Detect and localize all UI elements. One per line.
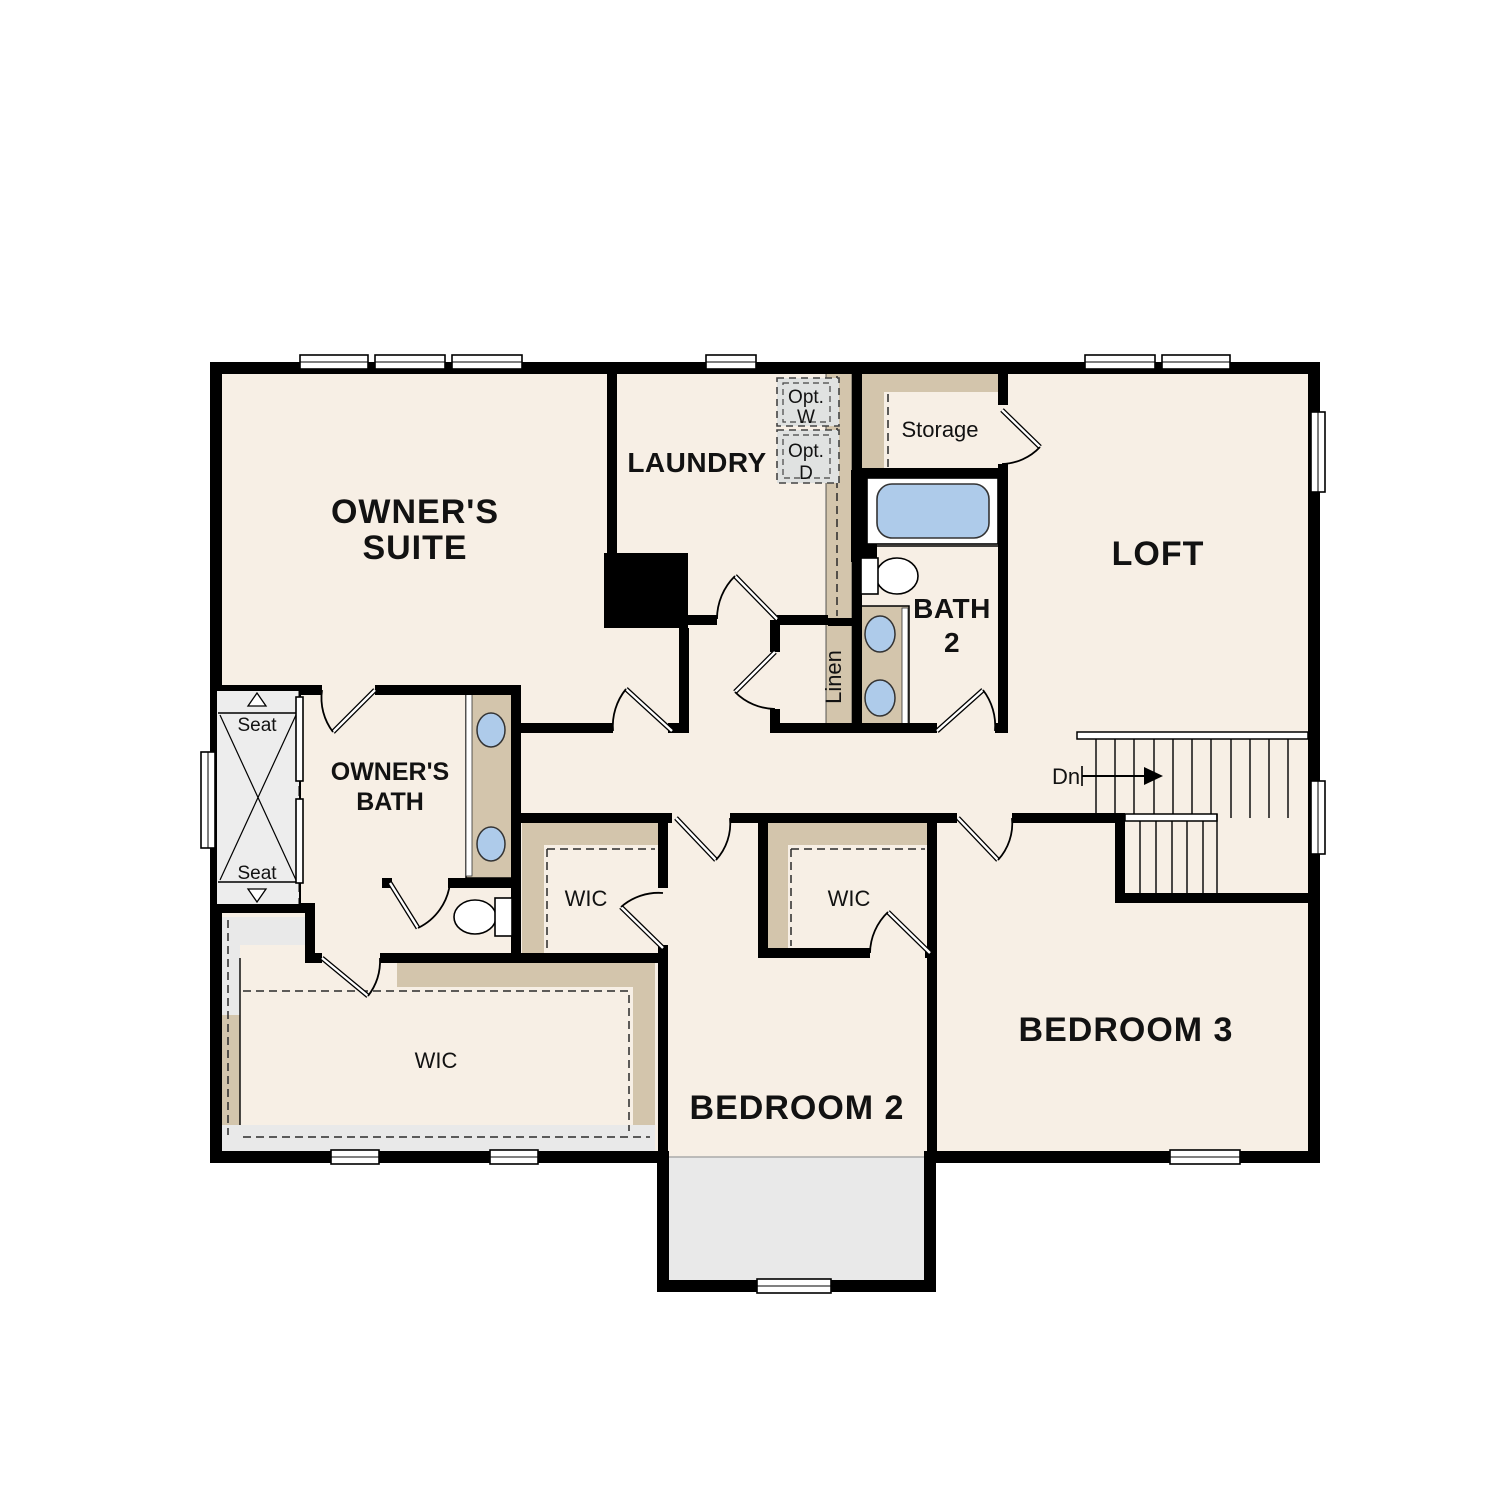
window — [375, 355, 445, 369]
bedroom2-bay-floor — [669, 1157, 924, 1280]
room-label-loft: LOFT — [1112, 535, 1205, 573]
bathtub-icon — [867, 478, 998, 544]
window — [1311, 781, 1325, 854]
optional-washer-label: W — [797, 407, 815, 428]
window — [201, 752, 215, 848]
chase — [604, 553, 688, 628]
shower-seat-label: Seat — [237, 715, 277, 736]
window — [490, 1150, 538, 1164]
shower-seat-label: Seat — [237, 863, 277, 884]
wic-shelf — [397, 963, 655, 987]
room-label-owners-bath: OWNER'S — [331, 758, 449, 786]
room-label-bedroom2: BEDROOM 2 — [690, 1089, 905, 1127]
optional-dryer-label: Opt. — [788, 441, 824, 462]
window — [1311, 412, 1325, 492]
optional-washer-label: Opt. — [788, 387, 824, 408]
room-label-wic-owners: WIC — [415, 1048, 458, 1073]
optional-dryer-label: D — [799, 463, 813, 484]
room-label-bath2: BATH — [913, 593, 991, 624]
room-label-wic-bedroom2-right: WIC — [828, 886, 871, 911]
sink-icon — [865, 680, 895, 716]
window — [452, 355, 522, 369]
toilet-icon — [454, 898, 512, 936]
floor-plan-page: OWNER'S SUITE LAUNDRY LOFT Storage BATH … — [0, 0, 1500, 1500]
room-label-bath2: 2 — [944, 627, 960, 658]
room-label-owners-suite: SUITE — [362, 529, 467, 567]
room-label-owners-bath: BATH — [356, 788, 424, 816]
sink-icon — [865, 616, 895, 652]
room-label-bedroom3: BEDROOM 3 — [1019, 1011, 1234, 1049]
room-label-storage: Storage — [901, 417, 978, 442]
storage-shelf-left — [862, 372, 884, 472]
window — [706, 355, 756, 369]
sink-icon — [477, 827, 505, 861]
window — [1085, 355, 1155, 369]
window — [1170, 1150, 1240, 1164]
toilet-icon — [861, 558, 918, 594]
window — [1162, 355, 1230, 369]
room-label-linen: Linen — [821, 650, 846, 704]
stairs-down-label: Dn — [1052, 764, 1080, 789]
room-label-laundry: LAUNDRY — [627, 447, 766, 478]
window — [300, 355, 368, 369]
sink-icon — [477, 713, 505, 747]
floor-plan: OWNER'S SUITE LAUNDRY LOFT Storage BATH … — [0, 0, 1500, 1500]
room-label-wic-bedroom2-left: WIC — [565, 886, 608, 911]
window — [757, 1279, 831, 1293]
window — [331, 1150, 379, 1164]
room-label-owners-suite: OWNER'S — [331, 493, 499, 531]
